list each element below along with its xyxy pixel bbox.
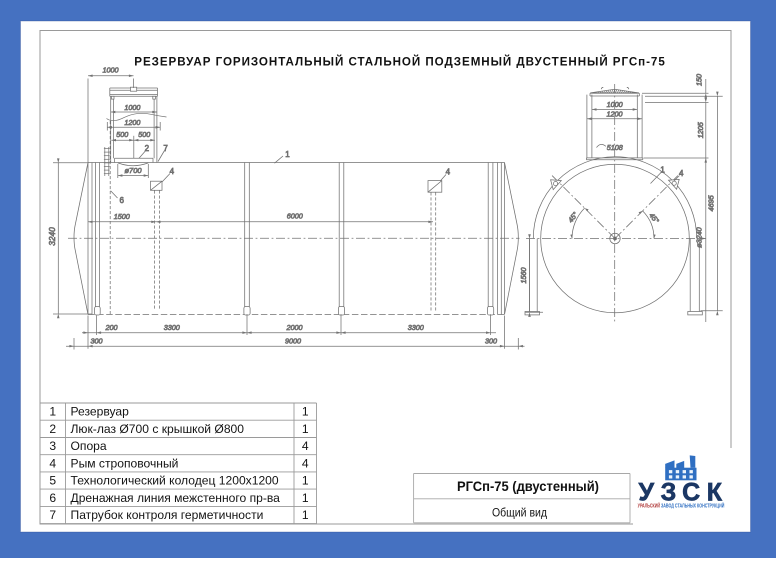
svg-text:4: 4 — [170, 167, 175, 176]
svg-text:9000: 9000 — [285, 336, 301, 345]
svg-text:3300: 3300 — [408, 323, 424, 332]
svg-text:ø700: ø700 — [124, 166, 142, 175]
svg-text:1500: 1500 — [114, 212, 130, 221]
svg-text:4: 4 — [679, 169, 684, 178]
svg-text:5: 5 — [49, 474, 56, 488]
svg-text:Дренажная линия межстенного пр: Дренажная линия межстенного пр-ва — [71, 491, 281, 505]
svg-text:3300: 3300 — [164, 323, 180, 332]
svg-text:4: 4 — [302, 456, 309, 470]
svg-text:Общий вид: Общий вид — [492, 506, 547, 520]
svg-text:500: 500 — [116, 130, 128, 139]
svg-text:150: 150 — [694, 74, 703, 86]
svg-text:1: 1 — [660, 165, 665, 174]
svg-text:УЗСК: УЗСК — [639, 478, 729, 506]
svg-text:1: 1 — [302, 491, 309, 505]
svg-text:1560: 1560 — [519, 268, 528, 284]
svg-text:1205: 1205 — [696, 121, 705, 138]
svg-text:Технологический колодец 1200х1: Технологический колодец 1200х1200 — [71, 474, 279, 488]
svg-text:5108: 5108 — [607, 143, 623, 152]
svg-text:3: 3 — [49, 439, 56, 453]
svg-text:1000: 1000 — [103, 66, 119, 75]
svg-text:6: 6 — [120, 196, 125, 205]
svg-text:РЕЗЕРВУАР ГОРИЗОНТАЛЬНЫЙ СТАЛЬ: РЕЗЕРВУАР ГОРИЗОНТАЛЬНЫЙ СТАЛЬНОЙ ПОДЗЕМ… — [134, 55, 665, 68]
svg-text:1: 1 — [302, 474, 309, 488]
svg-text:1: 1 — [285, 150, 290, 159]
svg-text:1: 1 — [302, 508, 309, 522]
svg-text:4: 4 — [49, 456, 56, 470]
svg-text:3240: 3240 — [47, 227, 57, 246]
svg-text:7: 7 — [49, 508, 56, 522]
svg-text:Рым строповочный: Рым строповочный — [71, 456, 179, 470]
svg-text:2: 2 — [49, 422, 56, 436]
svg-text:1200: 1200 — [124, 118, 140, 127]
svg-text:4: 4 — [446, 168, 451, 177]
svg-text:300: 300 — [485, 336, 497, 345]
svg-text:Резервуар: Резервуар — [71, 405, 130, 419]
svg-text:1000: 1000 — [124, 103, 140, 112]
svg-text:6000: 6000 — [287, 212, 303, 221]
svg-text:Патрубок контроля герметичност: Патрубок контроля герметичности — [71, 508, 264, 522]
svg-text:300: 300 — [91, 336, 103, 345]
svg-text:РГСп-75 (двустенный): РГСп-75 (двустенный) — [457, 479, 599, 494]
svg-text:1: 1 — [302, 405, 309, 419]
svg-text:4695: 4695 — [706, 194, 715, 211]
svg-text:6: 6 — [49, 491, 56, 505]
svg-text:7: 7 — [163, 144, 168, 153]
svg-text:2: 2 — [145, 144, 150, 153]
svg-text:ø3240: ø3240 — [695, 227, 704, 247]
svg-text:Люк-лаз Ø700 с крышкой Ø800: Люк-лаз Ø700 с крышкой Ø800 — [71, 422, 245, 436]
svg-text:200: 200 — [105, 323, 118, 332]
svg-text:4: 4 — [302, 439, 309, 453]
svg-text:2000: 2000 — [286, 323, 303, 332]
svg-text:1: 1 — [302, 422, 309, 436]
svg-text:Опора: Опора — [71, 439, 107, 453]
svg-text:500: 500 — [138, 130, 150, 139]
svg-text:1: 1 — [49, 405, 56, 419]
